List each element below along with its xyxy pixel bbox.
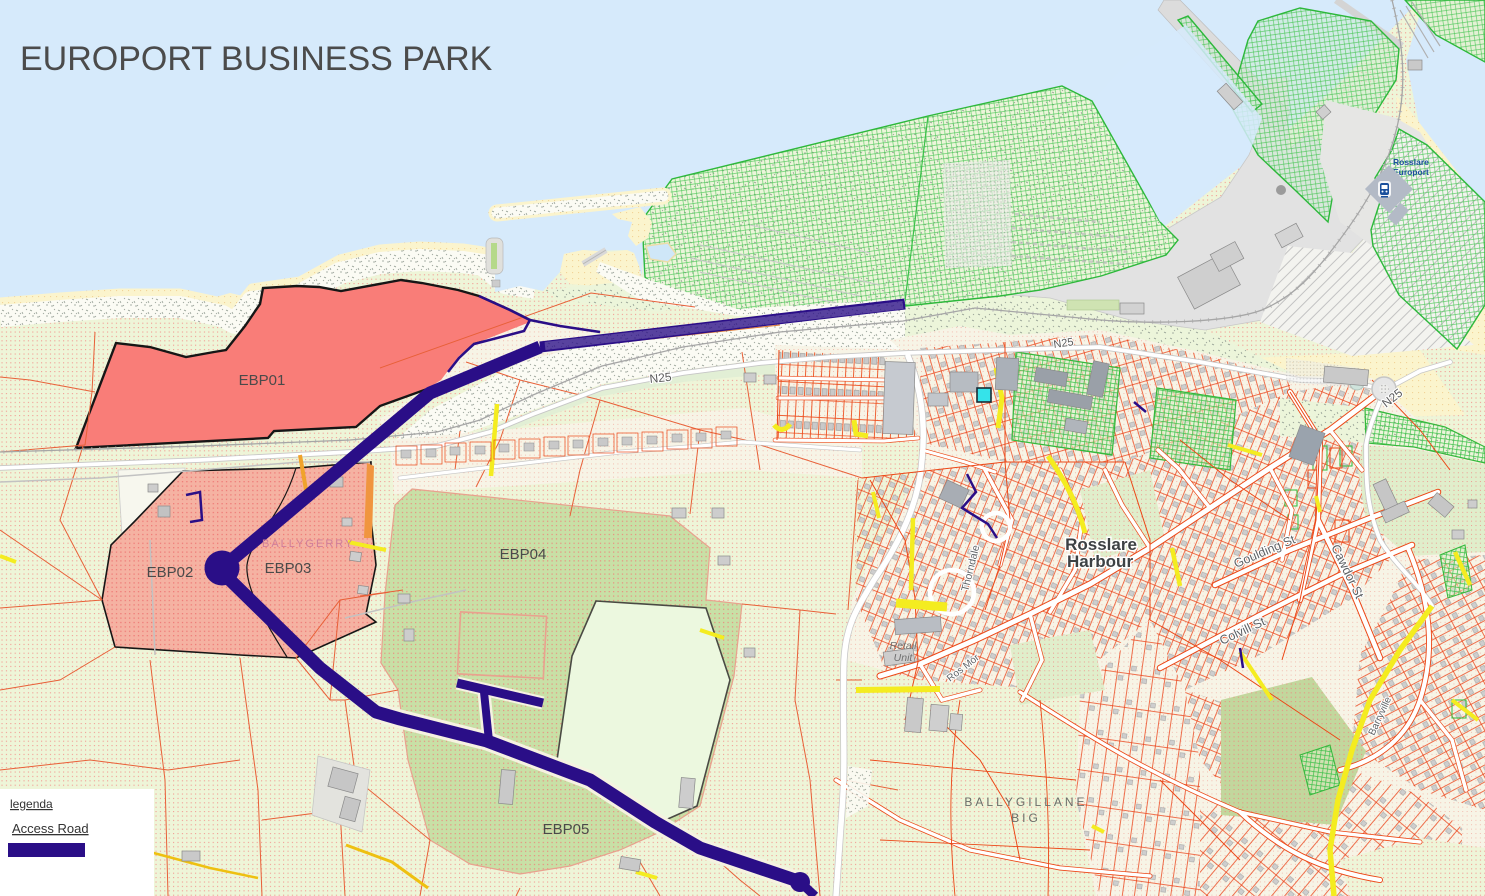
svg-text:Retail: Retail xyxy=(890,640,918,652)
svg-text:EUROPORT BUSINESS PARK: EUROPORT BUSINESS PARK xyxy=(20,40,493,78)
svg-text:BIG: BIG xyxy=(1011,811,1041,825)
svg-text:EBP02: EBP02 xyxy=(147,564,194,581)
svg-text:BALLYGILLANE: BALLYGILLANE xyxy=(964,795,1087,809)
svg-text:Access Road: Access Road xyxy=(12,821,89,836)
svg-text:legenda: legenda xyxy=(10,797,53,811)
svg-text:Unit: Unit xyxy=(894,652,914,664)
svg-text:EBP05: EBP05 xyxy=(543,821,590,838)
svg-text:BALLYGERRY: BALLYGERRY xyxy=(262,538,354,550)
svg-text:Rosslare: Rosslare xyxy=(1393,157,1429,167)
svg-text:EBP03: EBP03 xyxy=(265,560,312,577)
svg-text:Harbour: Harbour xyxy=(1067,552,1134,571)
svg-text:EBP01: EBP01 xyxy=(239,372,286,389)
svg-text:N25: N25 xyxy=(649,370,673,386)
svg-text:EBP04: EBP04 xyxy=(500,546,547,563)
